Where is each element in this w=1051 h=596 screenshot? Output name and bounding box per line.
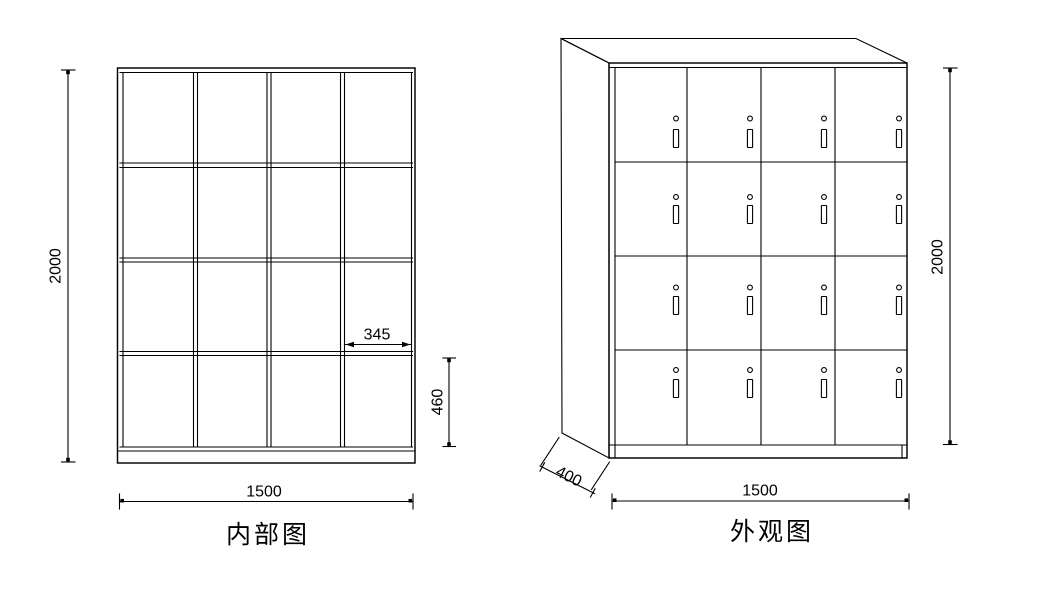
internal-cell-height-dimension: 460 bbox=[430, 358, 456, 447]
external-view-title: 外观图 bbox=[730, 518, 814, 546]
door-lock bbox=[673, 195, 678, 224]
door-lock bbox=[896, 368, 901, 398]
keyhole-icon bbox=[822, 195, 827, 200]
dimension-end-dot bbox=[447, 359, 451, 363]
keyhole-icon bbox=[897, 116, 902, 121]
door-lock bbox=[821, 116, 826, 147]
external-kick-plate bbox=[609, 445, 907, 458]
dimension-end-dot bbox=[120, 499, 124, 503]
keyhole-icon bbox=[748, 116, 753, 121]
keyhole-icon bbox=[674, 195, 679, 200]
door-lock bbox=[821, 368, 826, 398]
cabinet-top-face bbox=[561, 39, 907, 64]
dimension-end-dot bbox=[613, 498, 617, 502]
dimension-value: 2000 bbox=[48, 248, 65, 284]
cabinet-front-face bbox=[609, 63, 907, 458]
dimension-arrow bbox=[346, 342, 355, 347]
dimension-value: 345 bbox=[364, 327, 391, 344]
external-depth-dimension: 400 bbox=[540, 438, 610, 498]
handle-icon bbox=[896, 297, 901, 315]
internal-view-title: 内部图 bbox=[226, 521, 310, 549]
handle-icon bbox=[673, 297, 678, 315]
door-locks bbox=[673, 116, 901, 397]
keyhole-icon bbox=[674, 116, 679, 121]
handle-icon bbox=[896, 206, 901, 224]
keyhole-icon bbox=[822, 116, 827, 121]
handle-icon bbox=[673, 206, 678, 224]
keyhole-icon bbox=[822, 368, 827, 373]
dimension-arrow bbox=[402, 342, 411, 347]
external-height-dimension: 2000 bbox=[930, 68, 958, 445]
dimension-extension-line bbox=[541, 438, 559, 466]
internal-height-dimension: 2000 bbox=[48, 70, 76, 462]
handle-icon bbox=[673, 130, 678, 148]
dimension-end-dot bbox=[905, 498, 909, 502]
handle-icon bbox=[747, 297, 752, 315]
door-lock bbox=[896, 285, 901, 314]
keyhole-icon bbox=[748, 368, 753, 373]
door-lock bbox=[747, 368, 752, 398]
handle-icon bbox=[673, 380, 678, 398]
door-lock bbox=[747, 195, 752, 224]
external-view: 400 1500 2000 外观图 bbox=[540, 39, 957, 547]
handle-icon bbox=[821, 297, 826, 315]
keyhole-icon bbox=[674, 368, 679, 373]
dimension-end-dot bbox=[948, 69, 952, 73]
handle-icon bbox=[747, 206, 752, 224]
door-lock bbox=[896, 195, 901, 224]
dimension-value: 460 bbox=[430, 389, 447, 416]
handle-icon bbox=[821, 206, 826, 224]
dimension-end-dot bbox=[66, 458, 70, 462]
external-width-dimension: 1500 bbox=[612, 483, 909, 510]
dimension-value: 1500 bbox=[246, 484, 282, 501]
dimension-value: 2000 bbox=[930, 239, 947, 275]
door-lock bbox=[747, 116, 752, 147]
keyhole-icon bbox=[897, 285, 902, 290]
door-lock bbox=[673, 285, 678, 314]
keyhole-icon bbox=[897, 368, 902, 373]
keyhole-icon bbox=[674, 285, 679, 290]
door-lock bbox=[821, 285, 826, 314]
dimension-end-dot bbox=[66, 71, 70, 75]
handle-icon bbox=[821, 130, 826, 148]
door-grid-lines bbox=[615, 68, 907, 446]
dimension-value: 1500 bbox=[742, 483, 778, 500]
dimension-end-dot bbox=[409, 499, 413, 503]
handle-icon bbox=[747, 130, 752, 148]
keyhole-icon bbox=[822, 285, 827, 290]
drawing-canvas: 2000 1500 345 bbox=[0, 0, 1051, 596]
door-lock bbox=[821, 195, 826, 224]
door-lock bbox=[747, 285, 752, 314]
dimension-end-dot bbox=[447, 442, 451, 446]
dimension-end-dot bbox=[948, 440, 952, 444]
handle-icon bbox=[747, 380, 752, 398]
internal-cabinet-outline bbox=[118, 68, 416, 463]
dimension-extension-line bbox=[592, 462, 610, 490]
internal-view: 2000 1500 345 bbox=[48, 68, 456, 549]
internal-grid-lines bbox=[120, 73, 413, 448]
handle-icon bbox=[821, 380, 826, 398]
internal-cell-width-dimension: 345 bbox=[346, 327, 411, 348]
door-lock bbox=[896, 116, 901, 147]
keyhole-icon bbox=[748, 195, 753, 200]
locker-technical-drawing: 2000 1500 345 bbox=[0, 0, 1051, 596]
keyhole-icon bbox=[748, 285, 753, 290]
cabinet-side-face bbox=[561, 39, 609, 459]
keyhole-icon bbox=[897, 195, 902, 200]
handle-icon bbox=[896, 130, 901, 148]
handle-icon bbox=[896, 380, 901, 398]
internal-width-dimension: 1500 bbox=[120, 484, 414, 510]
door-lock bbox=[673, 368, 678, 398]
door-lock bbox=[673, 116, 678, 147]
